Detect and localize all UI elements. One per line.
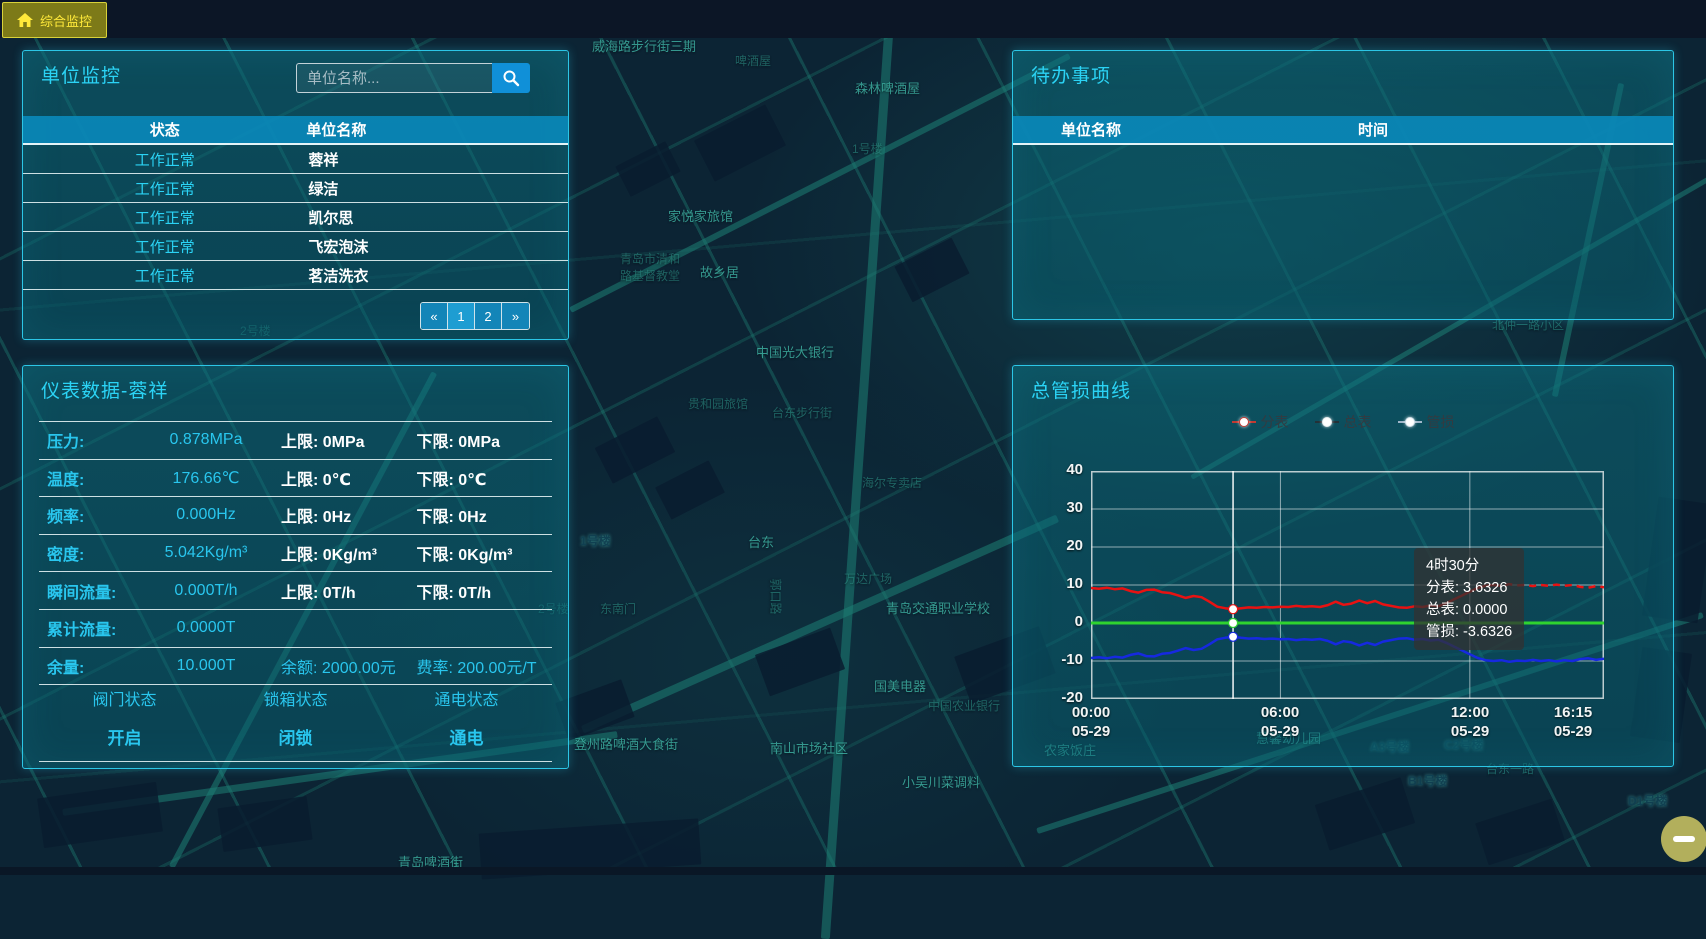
map-label: D1号楼 <box>1628 792 1667 809</box>
status-labels-row: 阀门状态 锁箱状态 通电状态 <box>39 686 552 710</box>
col-status: 状态 <box>23 119 306 140</box>
pipe-loss-chart-panel: 总管损曲线 分表 总表 管损 403020100-10-20 00:00 05-… <box>1012 365 1674 767</box>
legend-marker-icon <box>1315 421 1339 423</box>
legend-marker-icon <box>1232 421 1256 423</box>
map-label: 啤酒屋 <box>735 52 771 69</box>
map-building <box>615 141 680 197</box>
map-road <box>821 0 898 939</box>
page-next-button[interactable]: » <box>502 303 529 329</box>
minus-icon <box>1673 836 1695 842</box>
map-label: 国美电器 <box>874 676 926 695</box>
col-time: 时间 <box>1343 119 1673 140</box>
map-label: 东南门 <box>600 600 636 617</box>
table-row[interactable]: 工作正常 凯尔思 <box>23 203 568 232</box>
map-label: 1号楼 <box>580 532 611 549</box>
units-table-body: 工作正常 蓉祥 工作正常 绿洁 工作正常 凯尔思 工作正常 飞宏泡沫 工作正常 … <box>23 145 568 290</box>
map-building <box>37 782 163 848</box>
map-label: 海尔专卖店 <box>862 474 922 491</box>
meter-status-section: 阀门状态 锁箱状态 通电状态 开启 闭锁 通电 <box>39 686 552 762</box>
meter-row-remaining: 余量: 10.000T 余额: 2000.00元 费率: 200.00元/T <box>39 648 552 686</box>
panel-title: 总管损曲线 <box>1031 376 1131 403</box>
search-button[interactable] <box>492 63 530 93</box>
map-building <box>655 460 725 519</box>
map-label: 台东步行街 <box>772 404 832 421</box>
map-label: 威海路步行街三期 <box>592 36 696 55</box>
map-label: 青岛交通职业学校 <box>886 598 990 617</box>
lockbox-status-label: 锁箱状态 <box>210 686 381 710</box>
map-label: 郭口路 <box>768 578 785 614</box>
home-icon <box>17 13 33 28</box>
map-label: 中国光大银行 <box>756 342 834 361</box>
chart-legend: 分表 总表 管损 <box>1013 412 1673 432</box>
y-axis-tick: 10 <box>1013 575 1083 592</box>
meter-data-panel: 仪表数据-蓉祥 压力: 0.878MPa 上限: 0MPa 下限: 0MPa 温… <box>22 365 569 769</box>
page-2-button[interactable]: 2 <box>475 303 502 329</box>
power-status-label: 通电状态 <box>381 686 552 710</box>
map-label: 中国农业银行 <box>928 697 1000 714</box>
meter-row-frequency: 频率: 0.000Hz 上限: 0Hz 下限: 0Hz <box>39 497 552 535</box>
map-building <box>894 238 969 303</box>
y-axis-tick: 20 <box>1013 537 1083 554</box>
loss-chart-plot[interactable] <box>1091 471 1604 699</box>
legend-marker-icon <box>1398 421 1422 423</box>
map-building <box>694 104 786 181</box>
meter-row-temperature: 温度: 176.66℃ 上限: 0℃ 下限: 0℃ <box>39 460 552 498</box>
zoom-out-button[interactable] <box>1661 816 1706 862</box>
search-input[interactable] <box>296 63 492 93</box>
map-building <box>595 416 676 483</box>
panel-title: 仪表数据-蓉祥 <box>41 376 168 403</box>
unit-monitor-panel: 单位监控 状态 单位名称 工作正常 蓉祥 工作正常 绿洁 <box>22 50 569 340</box>
map-label: 故乡居 <box>700 262 739 281</box>
valve-status-label: 阀门状态 <box>39 686 210 710</box>
map-road <box>581 515 1059 734</box>
meter-row-density: 密度: 5.042Kg/m³ 上限: 0Kg/m³ 下限: 0Kg/m³ <box>39 535 552 573</box>
panel-title: 待办事项 <box>1031 61 1111 88</box>
todo-panel: 待办事项 单位名称 时间 <box>1012 50 1674 320</box>
todo-table-header: 单位名称 时间 <box>1013 116 1673 145</box>
col-unit-name: 单位名称 <box>306 119 568 140</box>
y-axis-tick: 40 <box>1013 461 1083 478</box>
map-building <box>1315 777 1415 850</box>
page-1-button[interactable]: 1 <box>448 303 475 329</box>
power-status-value: 通电 <box>381 724 552 749</box>
map-label: B1号楼 <box>1408 772 1447 789</box>
table-row[interactable]: 工作正常 飞宏泡沫 <box>23 232 568 261</box>
table-row[interactable]: 工作正常 茗洁洗衣 <box>23 261 568 290</box>
map-building <box>1475 799 1565 866</box>
pagination: « 1 2 » <box>420 302 530 330</box>
topbar: 综合监控 <box>0 0 1706 38</box>
bottom-strip <box>0 867 1706 875</box>
search-icon <box>502 69 520 87</box>
units-table-header: 状态 单位名称 <box>23 116 568 145</box>
map-building <box>217 796 312 852</box>
map-building <box>755 628 845 697</box>
map-label: 台东 <box>748 532 774 551</box>
map-label: 贵和园旅馆 <box>688 395 748 412</box>
y-axis-tick: 0 <box>1013 613 1083 630</box>
meter-row-pressure: 压力: 0.878MPa 上限: 0MPa 下限: 0MPa <box>39 422 552 460</box>
tab-integrated-monitoring[interactable]: 综合监控 <box>2 2 107 38</box>
meter-table: 压力: 0.878MPa 上限: 0MPa 下限: 0MPa 温度: 176.6… <box>39 421 552 685</box>
valve-status-value: 开启 <box>39 724 210 749</box>
meter-row-instant-flow: 瞬间流量: 0.000T/h 上限: 0T/h 下限: 0T/h <box>39 572 552 610</box>
y-axis-tick: -10 <box>1013 651 1083 668</box>
map-label: 小吴川菜调料 <box>902 772 980 791</box>
page-prev-button[interactable]: « <box>421 303 448 329</box>
legend-item-guansun[interactable]: 管损 <box>1398 412 1455 432</box>
lockbox-status-value: 闭锁 <box>210 724 381 749</box>
tab-label: 综合监控 <box>40 11 92 30</box>
panel-title: 单位监控 <box>41 61 121 88</box>
map-label: 家悦家旅馆 <box>668 206 733 225</box>
table-row[interactable]: 工作正常 绿洁 <box>23 174 568 203</box>
table-row[interactable]: 工作正常 蓉祥 <box>23 145 568 174</box>
legend-item-fenbiao[interactable]: 分表 <box>1232 412 1289 432</box>
status-values-row: 开启 闭锁 通电 <box>39 724 552 749</box>
col-unit-name: 单位名称 <box>1013 119 1343 140</box>
unit-search <box>296 63 530 93</box>
legend-item-zongbiao[interactable]: 总表 <box>1315 412 1372 432</box>
y-axis-tick: 30 <box>1013 499 1083 516</box>
meter-row-total-flow: 累计流量: 0.0000T <box>39 610 552 648</box>
